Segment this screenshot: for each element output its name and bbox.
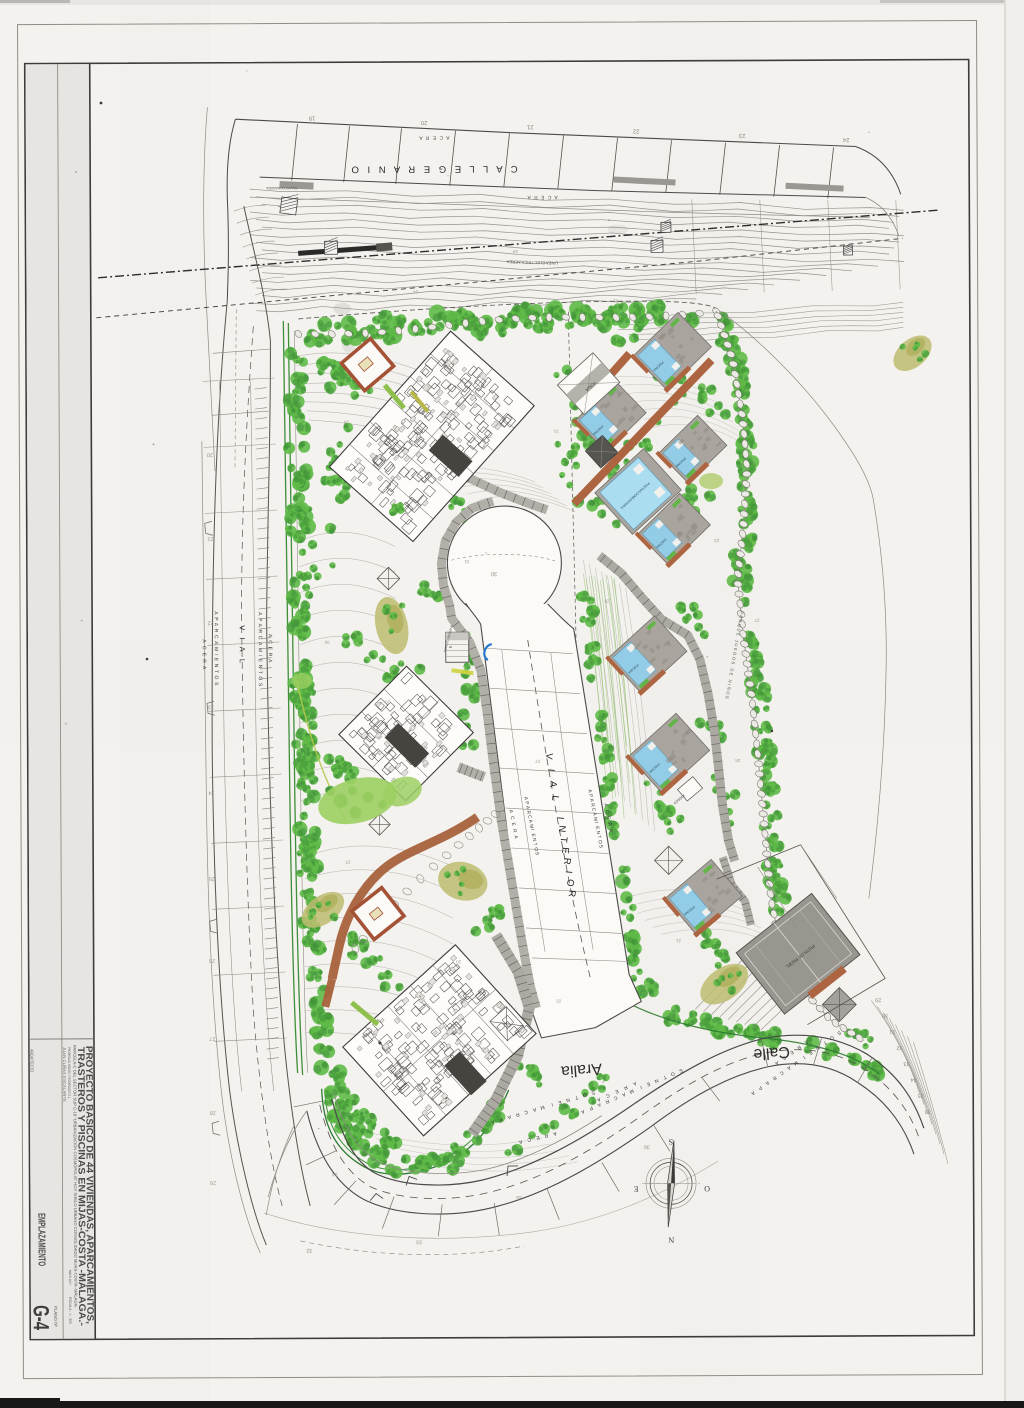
svg-text:20: 20 — [456, 959, 462, 964]
svg-text:20: 20 — [207, 451, 213, 457]
svg-text:Aralia: Aralia — [560, 1060, 602, 1080]
svg-text:29: 29 — [875, 996, 881, 1002]
svg-text:N: N — [556, 825, 568, 833]
svg-text:28: 28 — [210, 1109, 216, 1115]
svg-text:29: 29 — [513, 249, 519, 254]
svg-text:25: 25 — [343, 420, 349, 425]
svg-text:29: 29 — [210, 1179, 216, 1185]
svg-text:S: S — [669, 1137, 673, 1146]
svg-text:C A L L E G E R A N I O: C A L L E G E R A N I O — [348, 163, 517, 175]
svg-text:28: 28 — [604, 599, 610, 604]
svg-text:E: E — [559, 847, 571, 854]
svg-text:O: O — [564, 879, 576, 887]
svg-text:25: 25 — [735, 758, 741, 763]
svg-text:A C E R A: A C E R A — [418, 134, 449, 140]
svg-text:30: 30 — [615, 879, 621, 884]
svg-text:APARCAMIENTOS: APARCAMIENTOS — [213, 611, 219, 688]
svg-text:31: 31 — [553, 429, 559, 434]
svg-text:O: O — [704, 1184, 710, 1193]
svg-text:R: R — [566, 890, 578, 898]
svg-text:24: 24 — [842, 136, 849, 142]
svg-text:L: L — [549, 795, 560, 801]
svg-text:32: 32 — [306, 1247, 312, 1253]
svg-text:33: 33 — [903, 1060, 909, 1066]
svg-text:27: 27 — [209, 1035, 215, 1041]
svg-text:30: 30 — [490, 570, 497, 576]
svg-text:30: 30 — [324, 640, 330, 645]
svg-text:34: 34 — [911, 1076, 917, 1082]
svg-text:31: 31 — [464, 559, 470, 564]
svg-text:R: R — [561, 857, 573, 865]
svg-text:23: 23 — [714, 538, 720, 543]
svg-text:23: 23 — [345, 860, 351, 865]
svg-text:22: 22 — [632, 128, 639, 134]
svg-text:36: 36 — [644, 1143, 650, 1149]
svg-text:33: 33 — [416, 1238, 422, 1244]
svg-text:31: 31 — [613, 299, 619, 304]
svg-text:G-4: G-4 — [29, 1305, 54, 1331]
svg-text:19: 19 — [308, 114, 315, 120]
svg-text:24: 24 — [413, 289, 419, 294]
svg-text:TRANSFORMADORA: TRANSFORMADORA — [265, 186, 297, 190]
svg-text:20: 20 — [420, 119, 427, 125]
svg-text:ESCALA - 1 : 300: ESCALA - 1 : 300 — [68, 1297, 72, 1324]
svg-text:21: 21 — [676, 938, 682, 943]
svg-text:32: 32 — [896, 1044, 902, 1050]
svg-text:N: N — [668, 1235, 674, 1244]
svg-text:35: 35 — [918, 1092, 924, 1098]
svg-text:PLANO Nº: PLANO Nº — [53, 1306, 58, 1327]
svg-text:22: 22 — [556, 999, 562, 1004]
svg-text:E: E — [634, 1184, 639, 1193]
svg-text:31: 31 — [889, 1028, 895, 1034]
svg-text:ARQUITECTO: ARQUITECTO — [29, 1049, 34, 1072]
svg-text:35: 35 — [516, 1194, 522, 1200]
svg-text:20: 20 — [384, 700, 390, 705]
svg-text:30: 30 — [882, 1012, 888, 1018]
svg-text:34: 34 — [332, 1171, 338, 1177]
svg-text:26: 26 — [209, 957, 215, 963]
svg-text:21: 21 — [207, 535, 213, 541]
svg-text:36: 36 — [925, 1108, 931, 1114]
svg-text:VIAL: VIAL — [238, 625, 247, 670]
svg-text:25: 25 — [209, 875, 215, 881]
svg-text:ACERA: ACERA — [267, 634, 273, 665]
svg-text:APARCAMIENTOS: APARCAMIENTOS — [257, 612, 263, 689]
svg-text:EMPLAZAMIENTO: EMPLAZAMIENTO — [35, 1213, 46, 1266]
svg-text:23: 23 — [738, 132, 745, 138]
svg-text:21: 21 — [526, 123, 533, 129]
svg-text:27: 27 — [754, 618, 760, 623]
svg-text:27: 27 — [535, 759, 541, 764]
svg-text:24: 24 — [208, 789, 214, 795]
svg-text:ACERA: ACERA — [201, 639, 207, 672]
svg-text:23: 23 — [208, 703, 214, 709]
svg-text:JUAN CUÑAS ESCALANTE: JUAN CUÑAS ESCALANTE — [62, 1047, 67, 1102]
svg-text:MAYO 2017: MAYO 2017 — [68, 1270, 72, 1285]
